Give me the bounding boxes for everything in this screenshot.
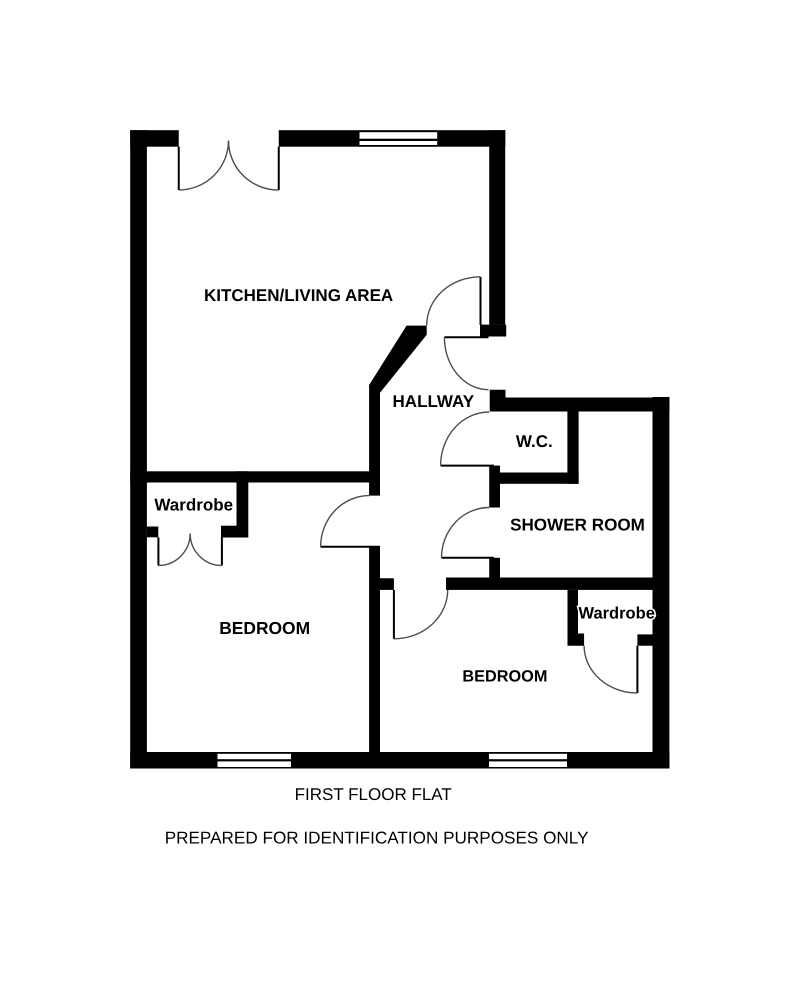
svg-text:PREPARED FOR IDENTIFICATION PU: PREPARED FOR IDENTIFICATION PURPOSES ONL… <box>165 828 589 848</box>
svg-text:Wardrobe: Wardrobe <box>154 496 233 515</box>
svg-text:FIRST FLOOR FLAT: FIRST FLOOR FLAT <box>295 785 452 804</box>
svg-text:HALLWAY: HALLWAY <box>393 392 475 411</box>
svg-text:SHOWER ROOM: SHOWER ROOM <box>510 516 645 535</box>
svg-text:W.C.: W.C. <box>516 432 553 451</box>
svg-text:BEDROOM: BEDROOM <box>219 618 310 638</box>
svg-text:BEDROOM: BEDROOM <box>462 668 547 686</box>
svg-text:Wardrobe: Wardrobe <box>578 605 654 623</box>
svg-text:KITCHEN/LIVING AREA: KITCHEN/LIVING AREA <box>204 286 393 305</box>
